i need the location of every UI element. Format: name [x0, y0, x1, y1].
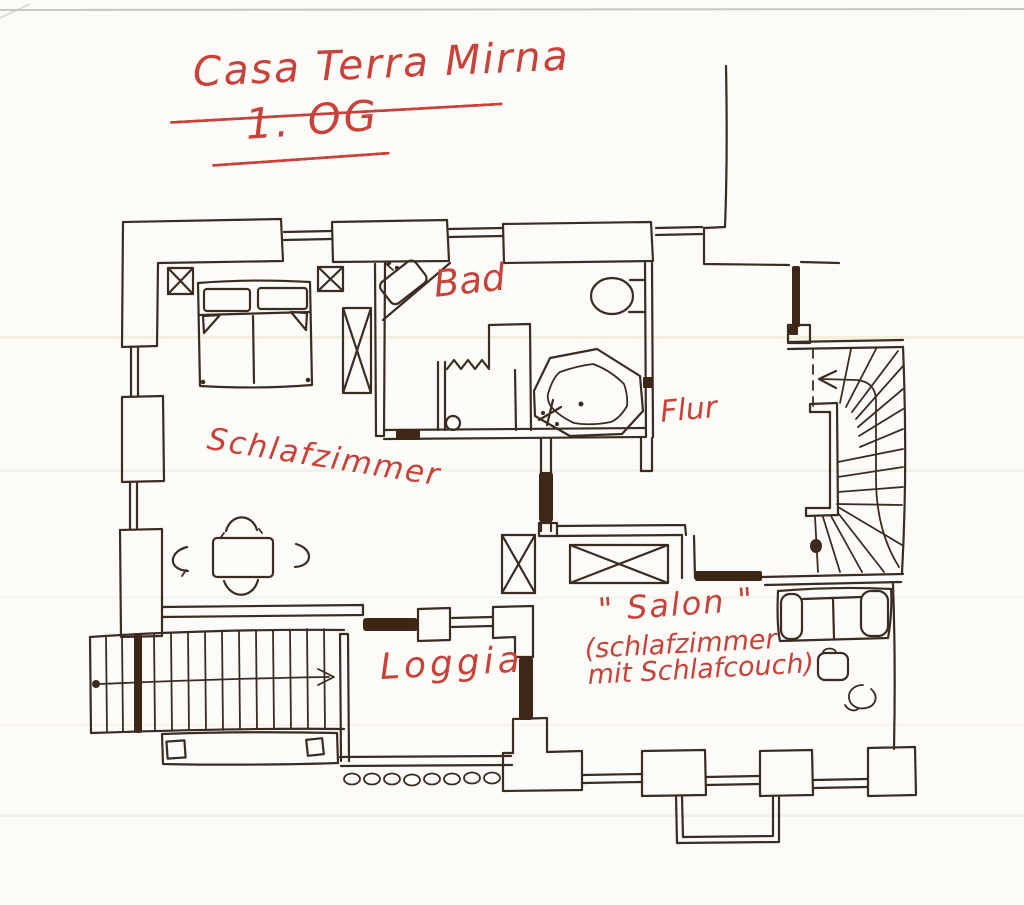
- bath-right-wall: [645, 263, 653, 437]
- sofa-icon: [778, 588, 892, 641]
- salon-corner-block: [868, 747, 916, 796]
- chair-bottom: [224, 580, 258, 595]
- drain: [446, 416, 460, 430]
- bed-icon: [198, 281, 312, 388]
- room-label-hallway: Flur: [659, 393, 718, 428]
- room-label-bathroom: Bad: [432, 259, 507, 303]
- stair-treads: [815, 349, 903, 572]
- wardrobe-icon-bedroom: [343, 308, 371, 393]
- chair-left: [173, 547, 188, 571]
- bath-bottom-wall: [384, 428, 645, 439]
- stairs-bottom-wall: [762, 574, 903, 585]
- chair-top: [226, 517, 257, 531]
- window-left-1: [131, 347, 138, 396]
- loggia-wall-pier: [418, 608, 450, 641]
- stairs-right-wall: [902, 347, 905, 573]
- top-wall-mid-block: [332, 220, 449, 262]
- top-wall-right-block: [503, 222, 653, 263]
- window-salon-1: [583, 774, 641, 783]
- toilet-icon: [591, 278, 645, 314]
- sofa-arm-left: [781, 594, 802, 639]
- window-salon-3: [813, 779, 867, 788]
- room-label-salon: " Salon ": [597, 583, 755, 626]
- wardrobe-icon-salon: [570, 545, 668, 583]
- chair-right: [295, 544, 309, 567]
- window-top-2: [449, 228, 502, 237]
- loggia-bottom-wall: [340, 756, 512, 766]
- pillow-left: [204, 289, 250, 311]
- interior-staircase: [806, 349, 903, 572]
- nightstand-icon-left: [168, 268, 193, 294]
- wardrobe-icon-small: [502, 535, 535, 593]
- window-left-2: [130, 482, 137, 529]
- wall-ink-mark-bath: [643, 377, 653, 388]
- shower-icon: [438, 324, 531, 430]
- nightstand-icon-right: [318, 267, 343, 291]
- window-salon-2: [706, 776, 759, 785]
- plant-squiggle-icon: [845, 685, 876, 710]
- flur-top-wall: [704, 228, 839, 265]
- floor-label: 1. OG: [244, 95, 381, 146]
- french-balcony-railing: [676, 796, 779, 843]
- salon-bottom-block-2: [760, 750, 813, 796]
- blanket-fold-right: [291, 312, 307, 330]
- door-bath: [396, 429, 420, 440]
- left-wall-pillar-2: [120, 529, 162, 637]
- upper-floor-wall-line: [704, 66, 727, 228]
- salon-bottom-left-block: [503, 718, 582, 791]
- landing-post-right: [306, 738, 324, 756]
- wall-ink-mark-stairdoor: [789, 326, 798, 335]
- landing-post-left: [166, 740, 185, 758]
- window-loggia: [452, 617, 492, 627]
- loggia-left-wall: [340, 634, 349, 761]
- pillow-right: [258, 288, 307, 309]
- window-top-1: [284, 231, 331, 240]
- door-bedroom-loggia: [363, 618, 418, 631]
- door-bedroom-flur: [539, 472, 553, 522]
- salon-entry-step: [682, 536, 695, 578]
- stair-landing: [162, 732, 338, 764]
- door-flur-stairs: [792, 266, 800, 327]
- flur-wall-stub: [641, 438, 652, 471]
- window-top-3: [656, 227, 702, 235]
- bedroom-bottom-wall: [162, 605, 363, 617]
- blanket-fold-left: [203, 315, 220, 333]
- salon-top-wall: [539, 523, 686, 536]
- shower-curtain-zigzag: [447, 360, 489, 369]
- loggia-balustrade: [344, 773, 500, 786]
- scan-artifacts: [0, 4, 1024, 817]
- exterior-stair-arrow: [99, 677, 329, 684]
- bathtub-icon: [534, 349, 643, 436]
- side-table-icon: [818, 649, 848, 681]
- stairs-top-wall: [788, 340, 903, 349]
- salon-bottom-block-1: [642, 750, 706, 796]
- room-label-loggia: Loggia: [379, 642, 525, 685]
- dining-table-icon: [173, 517, 309, 594]
- exterior-staircase: [90, 629, 344, 765]
- floor-plan-drawing: [0, 0, 1024, 905]
- table-top: [213, 538, 273, 577]
- stair-newel-wall: [806, 403, 838, 516]
- floor-plan-page: Casa Terra Mirna 1. OG Bad Flur Schlafzi…: [0, 0, 1024, 905]
